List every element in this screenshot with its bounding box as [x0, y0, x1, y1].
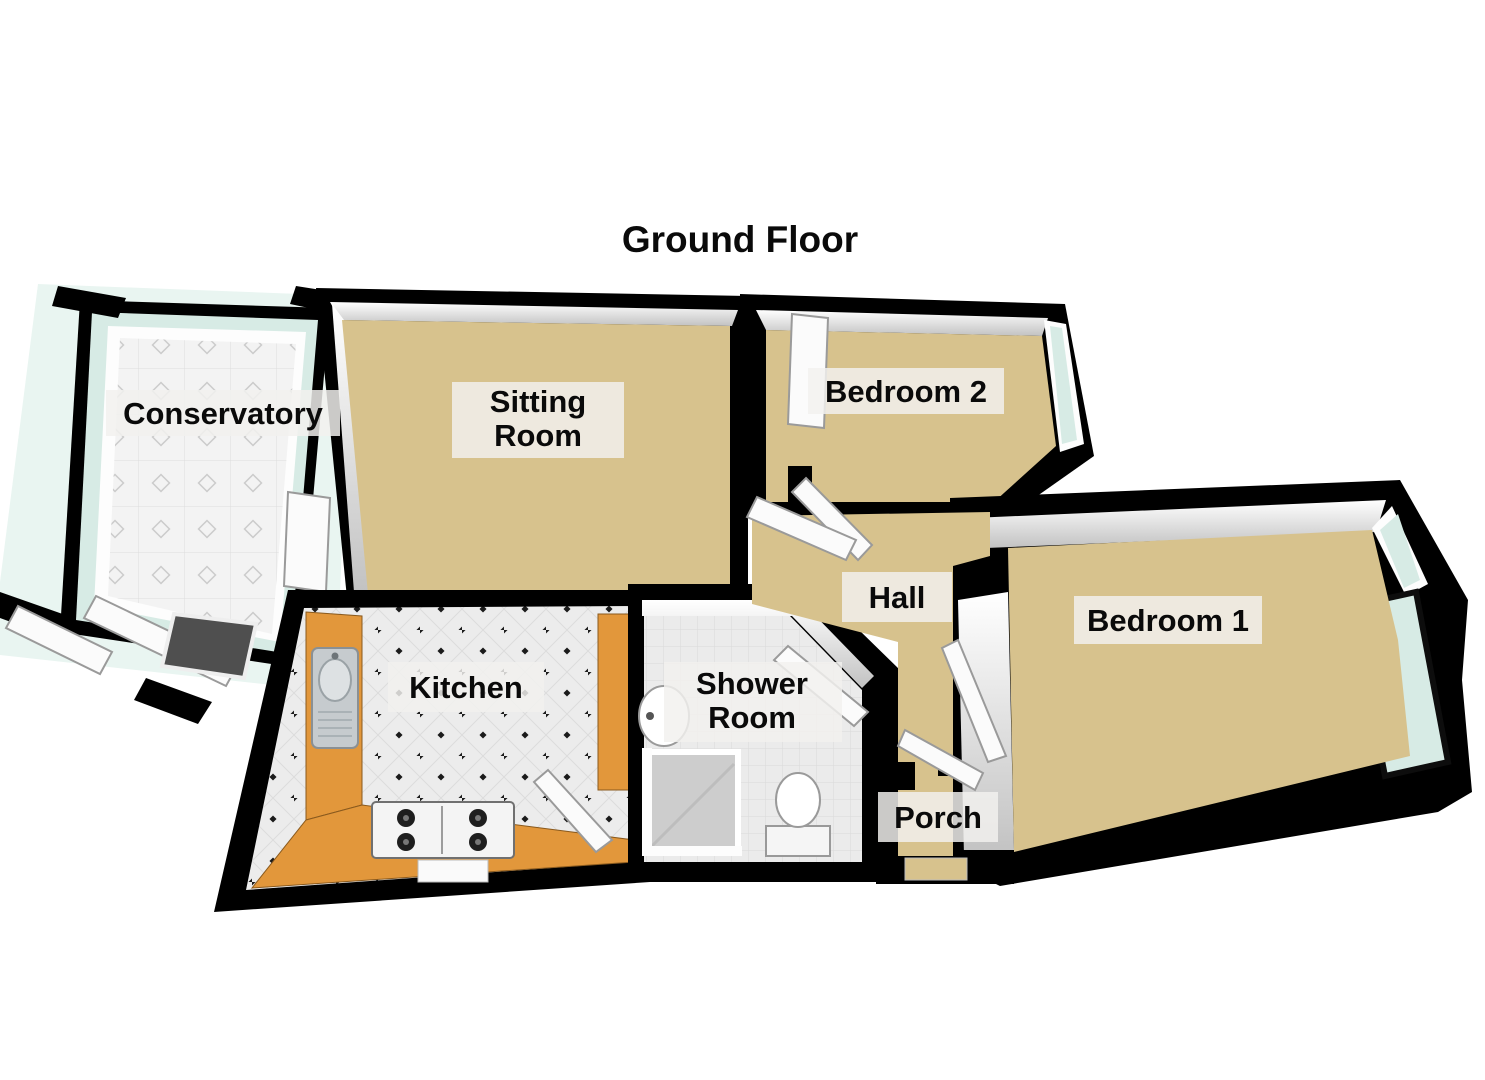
room-label-conservatory: Conservatory [106, 390, 340, 436]
room-label-sitting-room: Sitting Room [452, 382, 624, 458]
svg-text:Shower: Shower [696, 666, 808, 701]
svg-text:Room: Room [708, 700, 796, 735]
porch-wall-stub [893, 762, 915, 790]
floor-plan-figure: Ground Floor Conservatory Sitting Room B… [0, 0, 1485, 1080]
svg-text:Kitchen: Kitchen [409, 670, 523, 705]
shower-enclosure [642, 748, 742, 856]
floor-plan-canvas: Ground Floor Conservatory Sitting Room B… [0, 0, 1485, 1080]
room-label-bedroom-2: Bedroom 2 [808, 368, 1004, 414]
room-label-bedroom-1: Bedroom 1 [1074, 596, 1262, 644]
kitchen-sink [312, 648, 358, 748]
bedroom-1 [950, 480, 1472, 886]
svg-text:Bedroom 1: Bedroom 1 [1087, 603, 1249, 638]
room-label-shower-room: Shower Room [664, 662, 842, 742]
kitchen-exterior-door [418, 860, 488, 882]
svg-text:Conservatory: Conservatory [123, 396, 324, 431]
porch-exterior-door [905, 858, 967, 880]
svg-text:Porch: Porch [894, 800, 982, 835]
svg-text:Sitting: Sitting [490, 384, 586, 419]
conservatory-floor [108, 338, 296, 634]
gas-hob [372, 802, 514, 858]
room-label-hall: Hall [842, 572, 952, 622]
room-label-porch: Porch [878, 792, 998, 842]
svg-text:Hall: Hall [869, 580, 926, 615]
room-label-kitchen: Kitchen [388, 662, 544, 712]
conservatory-corner-cap [134, 678, 212, 724]
svg-text:Bedroom 2: Bedroom 2 [825, 374, 987, 409]
svg-text:Room: Room [494, 418, 582, 453]
conservatory-door-leaf [284, 492, 330, 592]
plan-title: Ground Floor [622, 219, 858, 260]
door-mat [162, 614, 256, 678]
